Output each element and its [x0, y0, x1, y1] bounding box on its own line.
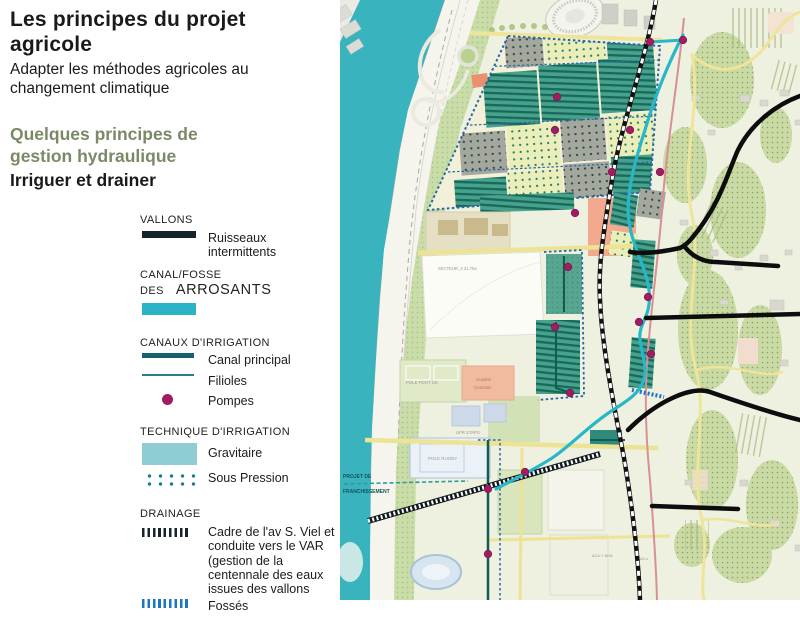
legend-item-canal-fosse — [142, 303, 340, 315]
teal-bar-swatch — [142, 303, 196, 315]
legend-heading-vallons: VALLONS — [140, 214, 340, 227]
gravitaire-swatch — [142, 443, 198, 465]
map-svg: SECTEUR_3 21.7ha POLE FOOT — [340, 0, 800, 600]
black-hatch-swatch — [142, 528, 188, 537]
legend-item-canal-principal: Canal principal — [142, 353, 340, 367]
velodrome — [411, 555, 461, 589]
parcel-a2b-label: A2-b 7.8HA — [592, 553, 613, 558]
teal-fill-swatch — [142, 443, 197, 465]
cuisine-label-2: Centrale — [474, 385, 492, 390]
pump-dot — [635, 318, 643, 326]
dark-line-swatch — [142, 231, 196, 238]
ufr-label: UFR STAPS — [456, 430, 480, 435]
legend-item-label: Fossés — [208, 599, 248, 613]
secteur-parcel: SECTEUR_3 21.7ha — [422, 252, 544, 338]
pump-dot — [564, 263, 572, 271]
sous-pression-swatch — [142, 471, 198, 486]
legend-item-label: Canal principal — [208, 353, 291, 367]
pump-dot — [679, 36, 687, 44]
projet-label-1: PROJET DE — [343, 474, 372, 480]
pump-dot — [553, 93, 561, 101]
pump-dot — [626, 126, 634, 134]
canal-principal-swatch — [142, 353, 198, 358]
legend-item-filioles: Filioles — [142, 374, 340, 388]
pump-dot — [551, 323, 559, 331]
legend-item-fosses: Fossés — [142, 599, 340, 613]
section-subheading: Irriguer et drainer — [10, 170, 340, 191]
thin-line-swatch — [142, 374, 194, 376]
projet-label-2: FRANCHISSEMENT — [343, 489, 390, 495]
canal-line-swatch — [142, 353, 194, 358]
legend-item-ruisseaux: Ruisseaux intermittents — [142, 231, 340, 260]
map-panel: SECTEUR_3 21.7ha POLE FOOT — [340, 0, 800, 600]
page-title: Les principes du projet agricole — [10, 8, 310, 58]
legend-item-label: Cadre de l'av S. Viel et conduite vers l… — [208, 525, 340, 597]
page-subtitle: Adapter les méthodes agricoles au change… — [10, 60, 320, 99]
pole-foot-label: POLE FOOT US — [406, 380, 438, 385]
pump-dot — [647, 350, 655, 358]
legend-item-pompes: Pompes — [142, 394, 340, 408]
pump-dot — [644, 293, 652, 301]
info-panel: Les principes du projet agricole Adapter… — [0, 0, 340, 600]
legend-item-label: Ruisseaux intermittents — [208, 231, 320, 260]
map-legend: VALLONS Ruisseaux intermittents CANAL/FO… — [140, 214, 340, 619]
pompes-swatch — [142, 394, 198, 405]
market-halls — [426, 212, 510, 252]
rugby-label: POLE RUGBY — [428, 456, 457, 461]
slide: Les principes du projet agricole Adapter… — [0, 0, 800, 600]
legend-heading-technique: TECHNIQUE D'IRRIGATION — [140, 426, 340, 439]
pump-dot — [551, 126, 559, 134]
pump-dot — [484, 485, 492, 493]
cuisine-centrale: Cuisine Centrale — [462, 366, 514, 400]
section-heading: Quelques principes de gestion hydrauliqu… — [10, 124, 250, 168]
pump-dot-swatch — [162, 394, 173, 405]
vallons-swatch — [142, 231, 198, 238]
cuisine-label-1: Cuisine — [476, 377, 492, 382]
pump-dot — [521, 468, 529, 476]
pump-dot — [484, 550, 492, 558]
canal-fosse-swatch — [142, 303, 198, 315]
dotted-swatch — [142, 471, 197, 486]
pump-dot — [608, 168, 616, 176]
legend-item-label: Sous Pression — [208, 471, 289, 485]
legend-heading-drainage: DRAINAGE — [140, 508, 340, 521]
legend-heading-canaux: CANAUX D'IRRIGATION — [140, 337, 340, 350]
legend-item-label: Filioles — [208, 374, 247, 388]
secteur-label: SECTEUR_3 21.7ha — [438, 266, 477, 271]
legend-item-cadre: Cadre de l'av S. Viel et conduite vers l… — [142, 525, 340, 597]
pump-dot — [656, 168, 664, 176]
pump-dot — [646, 38, 654, 46]
legend-item-gravitaire: Gravitaire — [142, 443, 340, 465]
parcel-a2c-label: A2-c — [640, 556, 648, 561]
roundabout — [459, 47, 477, 65]
cadre-swatch — [142, 528, 198, 537]
pump-dot — [566, 389, 574, 397]
legend-heading-canal-fosse: CANAL/FOSSE DESARROSANTS — [140, 269, 340, 298]
pole-foot: POLE FOOT US — [400, 360, 466, 402]
arrosants-heading-text: ARROSANTS — [176, 282, 272, 298]
legend-item-label: Pompes — [208, 394, 254, 408]
legend-item-sous-pression: Sous Pression — [142, 471, 340, 486]
filioles-swatch — [142, 374, 198, 376]
pump-dot — [571, 209, 579, 217]
legend-item-label: Gravitaire — [208, 446, 262, 460]
